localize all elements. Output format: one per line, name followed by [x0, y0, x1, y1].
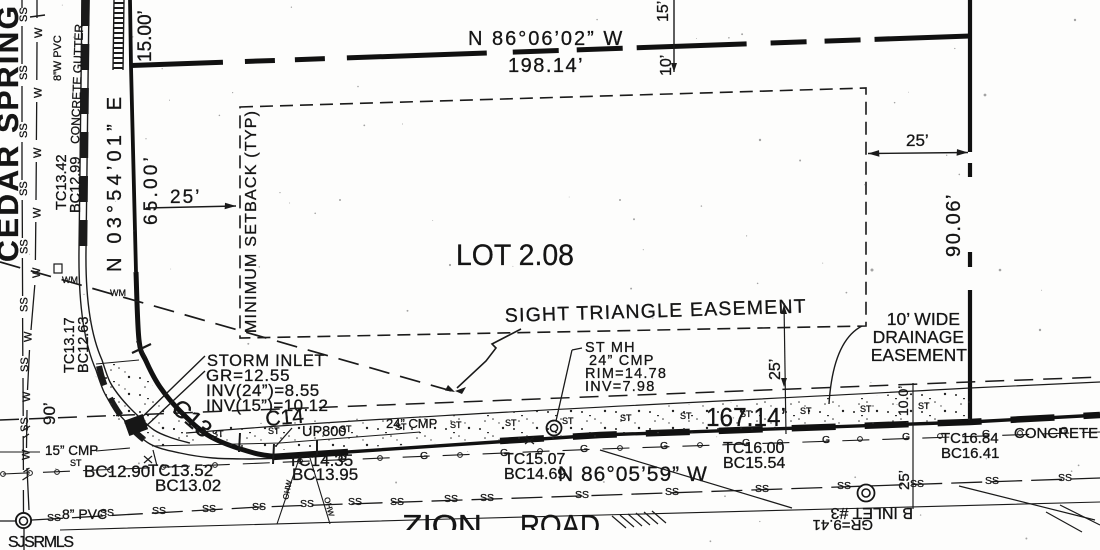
svg-text:SJSRMLS: SJSRMLS	[8, 534, 74, 550]
svg-text:INV=7.98: INV=7.98	[585, 379, 655, 395]
svg-text:ST: ST	[680, 411, 692, 421]
svg-text:ST: ST	[395, 422, 407, 432]
svg-text:W: W	[33, 87, 45, 98]
svg-text:MINIMUM SETBACK (TYP): MINIMUM SETBACK (TYP)	[243, 111, 260, 333]
svg-text:SS: SS	[575, 489, 589, 501]
svg-text:EASEMENT: EASEMENT	[871, 345, 968, 365]
svg-text:SS: SS	[755, 483, 769, 495]
svg-text:G: G	[338, 453, 346, 465]
svg-text:65.00’: 65.00’	[141, 154, 162, 225]
svg-text:15’: 15’	[655, 1, 672, 22]
svg-text:SS: SS	[152, 505, 166, 517]
svg-text:G: G	[580, 443, 588, 455]
svg-text:G: G	[1060, 425, 1068, 437]
svg-text:ST: ST	[740, 409, 752, 419]
svg-text:ST: ST	[505, 418, 517, 428]
svg-text:SS: SS	[1058, 472, 1072, 484]
svg-text:N 86°06’02” W: N 86°06’02” W	[468, 28, 624, 50]
svg-text:BC13.02: BC13.02	[155, 476, 221, 495]
svg-text:8”W PVC: 8”W PVC	[52, 35, 64, 81]
svg-text:198.14’: 198.14’	[508, 55, 584, 77]
svg-text:SS: SS	[252, 501, 266, 513]
svg-text:90’: 90’	[40, 402, 59, 425]
svg-text:ST: ST	[620, 413, 632, 423]
svg-text:W: W	[21, 391, 33, 402]
svg-text:SS: SS	[665, 486, 679, 498]
svg-text:SS: SS	[300, 498, 314, 510]
svg-text:W: W	[23, 331, 35, 342]
svg-text:N 86°05’59” W: N 86°05’59” W	[558, 463, 708, 486]
svg-text:ST: ST	[70, 458, 82, 468]
svg-text:GR=9.41: GR=9.41	[813, 516, 873, 533]
svg-text:SS: SS	[202, 503, 216, 515]
svg-text:SS: SS	[348, 496, 362, 508]
svg-text:ST: ST	[562, 416, 574, 426]
svg-text:90.06’: 90.06’	[943, 193, 965, 257]
svg-text:SS: SS	[19, 239, 31, 254]
svg-text:SS: SS	[390, 496, 404, 508]
svg-text:15” CMP: 15” CMP	[45, 443, 98, 458]
svg-text:BC12.63: BC12.63	[76, 317, 92, 373]
svg-text:8” PVC: 8” PVC	[62, 506, 107, 522]
svg-text:BC12.99: BC12.99	[68, 157, 84, 213]
svg-text:SS: SS	[837, 480, 851, 492]
svg-text:10.0’: 10.0’	[895, 386, 911, 416]
svg-text:G: G	[822, 434, 830, 446]
svg-text:W: W	[33, 27, 45, 38]
svg-text:BC16.41: BC16.41	[941, 445, 999, 462]
svg-text:G: G	[742, 437, 750, 449]
svg-text:DRAINAGE: DRAINAGE	[873, 327, 964, 347]
svg-text:25’: 25’	[767, 359, 784, 380]
svg-text:SS: SS	[910, 478, 924, 490]
svg-text:SS: SS	[444, 493, 458, 505]
svg-text:SS: SS	[480, 492, 494, 504]
svg-text:15.00’: 15.00’	[135, 10, 156, 62]
svg-text:W: W	[32, 207, 44, 218]
svg-text:25’: 25’	[906, 131, 929, 150]
svg-text:SS: SS	[19, 297, 31, 312]
svg-text:G: G	[902, 431, 910, 443]
svg-text:SS: SS	[18, 123, 30, 138]
svg-text:G: G	[660, 440, 668, 452]
svg-text:LOT 2.08: LOT 2.08	[456, 239, 574, 272]
svg-text:10’ WIDE: 10’ WIDE	[887, 309, 960, 329]
svg-text:G: G	[420, 450, 428, 462]
svg-text:G: G	[982, 428, 990, 440]
svg-text:BC14.69: BC14.69	[504, 466, 566, 483]
svg-text:25’: 25’	[170, 187, 201, 208]
svg-text:ST: ST	[212, 429, 224, 439]
svg-text:G: G	[500, 447, 508, 459]
svg-text:ST: ST	[340, 424, 352, 434]
svg-text:SS: SS	[47, 512, 61, 524]
svg-text:SS: SS	[985, 475, 999, 487]
svg-text:W: W	[21, 449, 33, 460]
svg-text:ST: ST	[450, 420, 462, 430]
svg-text:ST: ST	[268, 426, 280, 436]
svg-text:SS: SS	[18, 181, 30, 196]
svg-text:SS: SS	[18, 65, 30, 80]
svg-text:ST: ST	[800, 406, 812, 416]
svg-text:BC15.54: BC15.54	[723, 455, 785, 472]
svg-text:BC13.95: BC13.95	[292, 465, 358, 484]
svg-text:10’: 10’	[658, 55, 675, 76]
svg-text:ST: ST	[918, 401, 930, 411]
svg-text:W: W	[32, 147, 44, 158]
svg-text:ST: ST	[860, 404, 872, 414]
svg-text:N 03°54’01” E: N 03°54’01” E	[104, 93, 126, 272]
svg-text:BC12.90: BC12.90	[84, 462, 150, 481]
svg-text:24” CMP: 24” CMP	[386, 416, 437, 431]
svg-text:SS: SS	[18, 7, 30, 22]
